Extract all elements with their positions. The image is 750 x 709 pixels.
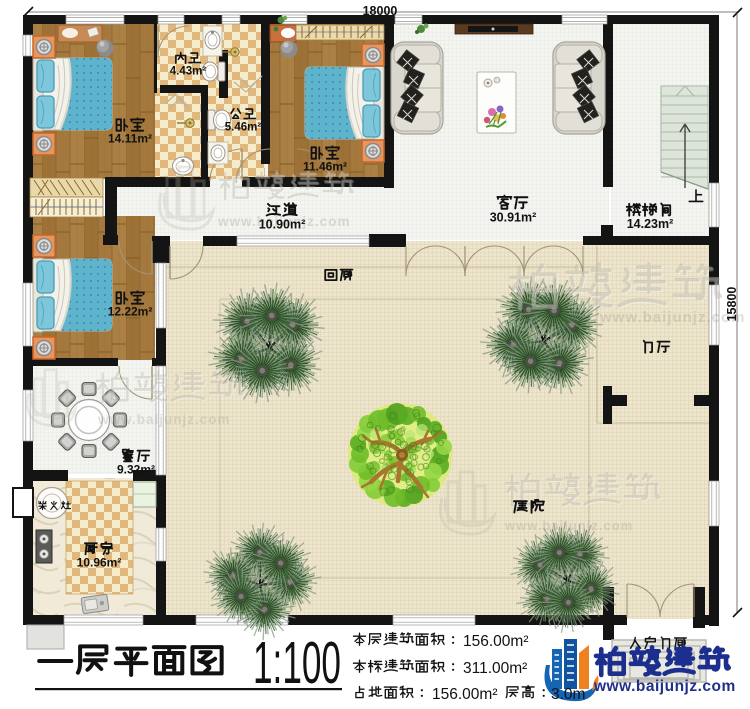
svg-text:10.90m²: 10.90m²	[259, 218, 306, 232]
svg-text:www.baijunjz.com: www.baijunjz.com	[504, 518, 633, 533]
svg-text:311.00m²: 311.00m²	[463, 660, 527, 677]
svg-text:www.baijunjz.com: www.baijunjz.com	[97, 412, 231, 427]
svg-text:30.91m²: 30.91m²	[490, 211, 537, 225]
svg-text:15800: 15800	[725, 287, 739, 322]
svg-text:18000: 18000	[363, 4, 398, 18]
svg-text:10.96m²: 10.96m²	[77, 556, 122, 570]
svg-text:4.43m²: 4.43m²	[170, 65, 207, 77]
svg-text:9.32m²: 9.32m²	[117, 463, 155, 477]
svg-text:156.00m²: 156.00m²	[432, 686, 497, 703]
svg-text:www.baijunjz.com: www.baijunjz.com	[593, 678, 736, 695]
svg-text:12.22m²: 12.22m²	[108, 305, 153, 319]
svg-text:14.11m²: 14.11m²	[108, 132, 152, 146]
svg-text:156.00m²: 156.00m²	[463, 633, 528, 650]
svg-text:14.23m²: 14.23m²	[627, 217, 674, 231]
svg-text:5.46m²: 5.46m²	[225, 121, 262, 133]
svg-text:3.0m: 3.0m	[551, 686, 585, 703]
svg-text:www.baijunjz.com: www.baijunjz.com	[599, 309, 745, 326]
svg-text:1:100: 1:100	[253, 630, 341, 696]
svg-text:11.46m²: 11.46m²	[303, 160, 347, 174]
